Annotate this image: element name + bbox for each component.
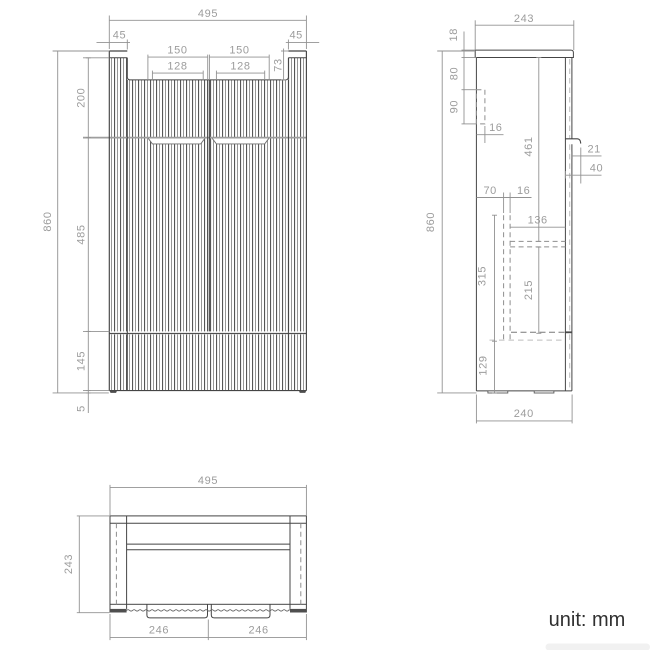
svg-text:461: 461 bbox=[523, 136, 535, 156]
svg-text:150: 150 bbox=[167, 45, 187, 57]
svg-text:unit: mm: unit: mm bbox=[549, 609, 626, 631]
svg-text:45: 45 bbox=[289, 30, 302, 42]
svg-text:129: 129 bbox=[478, 355, 490, 375]
svg-text:90: 90 bbox=[448, 100, 460, 113]
svg-text:16: 16 bbox=[489, 122, 502, 134]
svg-text:243: 243 bbox=[514, 13, 534, 25]
svg-text:215: 215 bbox=[523, 280, 535, 300]
svg-text:70: 70 bbox=[483, 185, 496, 197]
svg-text:860: 860 bbox=[425, 212, 437, 232]
svg-text:243: 243 bbox=[63, 554, 75, 574]
svg-text:200: 200 bbox=[75, 88, 87, 108]
svg-text:246: 246 bbox=[249, 625, 269, 637]
svg-text:246: 246 bbox=[149, 625, 169, 637]
svg-text:860: 860 bbox=[42, 211, 54, 231]
svg-text:40: 40 bbox=[590, 163, 603, 175]
svg-text:18: 18 bbox=[448, 28, 460, 41]
svg-text:495: 495 bbox=[198, 475, 218, 487]
svg-text:128: 128 bbox=[230, 61, 250, 73]
svg-text:150: 150 bbox=[229, 45, 249, 57]
svg-text:315: 315 bbox=[477, 266, 489, 286]
svg-text:128: 128 bbox=[167, 61, 187, 73]
svg-text:16: 16 bbox=[517, 185, 530, 197]
svg-text:73: 73 bbox=[273, 58, 285, 71]
svg-text:21: 21 bbox=[587, 144, 600, 156]
svg-text:145: 145 bbox=[75, 351, 87, 371]
svg-text:45: 45 bbox=[113, 30, 126, 42]
svg-text:80: 80 bbox=[448, 67, 460, 80]
svg-text:485: 485 bbox=[75, 224, 87, 244]
svg-text:240: 240 bbox=[514, 408, 534, 420]
svg-text:5: 5 bbox=[75, 405, 87, 412]
svg-text:495: 495 bbox=[198, 8, 218, 20]
svg-text:136: 136 bbox=[528, 215, 548, 227]
